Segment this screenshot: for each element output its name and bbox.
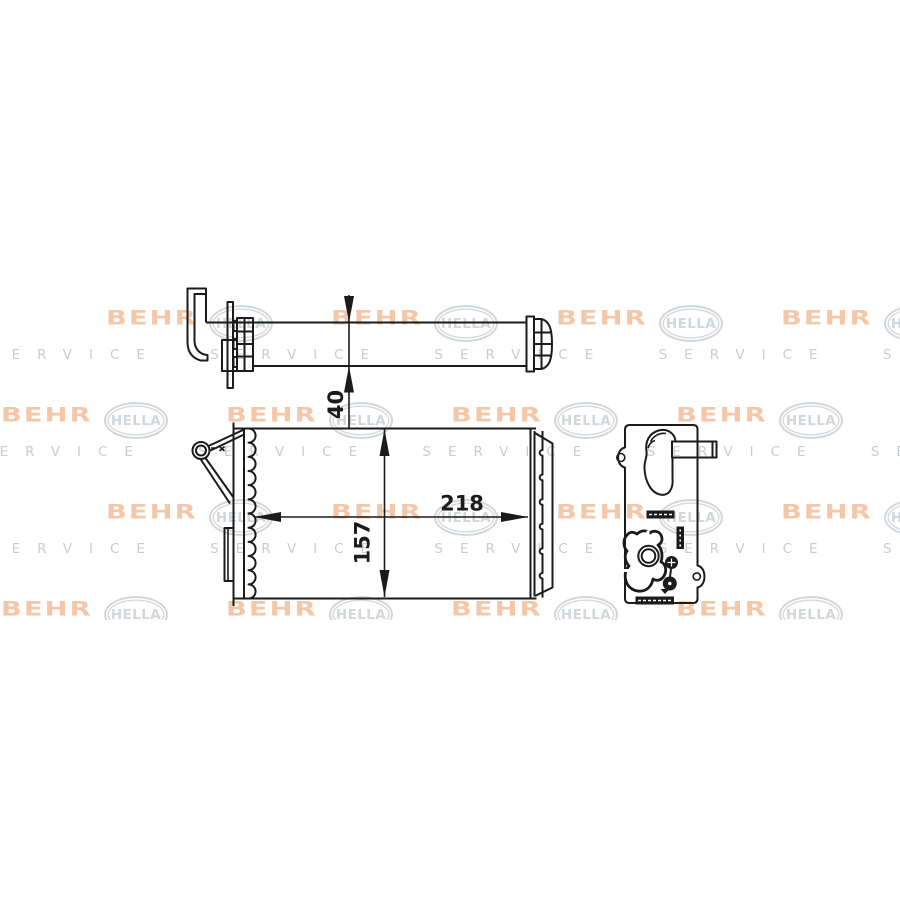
top-view <box>188 289 553 389</box>
corrugated-fins <box>249 429 256 599</box>
label-strip-vertical <box>677 527 685 550</box>
label-strip-middle <box>647 511 675 519</box>
inlet-flange-plate <box>228 302 234 388</box>
strut-line <box>206 458 234 498</box>
strut-line <box>201 459 231 504</box>
dimension-depth: 40 <box>324 295 354 429</box>
product-technical-drawing: BEHRHELLABEHRHELLABEHRHELLABEHRHELLABEHR… <box>0 0 900 900</box>
arrowhead-up <box>344 366 354 393</box>
end-plate <box>527 317 535 372</box>
front-view <box>193 423 553 607</box>
knob-lower-center <box>668 582 671 585</box>
tank-blob-outline <box>644 430 675 495</box>
pipe-body <box>672 442 717 458</box>
dim-width-label: 218 <box>440 492 484 516</box>
screw-hole-right <box>693 573 700 580</box>
index-triangle <box>661 589 670 594</box>
arrowhead-left <box>254 512 281 522</box>
knob-link <box>670 569 671 577</box>
arrowhead-right <box>501 512 528 522</box>
mounting-hook-bracket <box>188 289 208 361</box>
fitting-ring-inner <box>642 549 656 563</box>
side-bracket-view <box>617 425 717 605</box>
right-tank-outline <box>535 433 553 596</box>
label-strip-bottom <box>636 597 675 605</box>
side-tab <box>225 528 234 581</box>
arrowhead-down <box>344 296 354 323</box>
pipe-stub-inner <box>196 446 206 456</box>
arrowhead-up <box>380 429 390 456</box>
dimension-width: 218 <box>254 492 528 523</box>
heater-core-line-drawing: 40 218 <box>0 0 900 900</box>
right-tank-solder-seam <box>540 431 543 598</box>
dim-depth-label: 40 <box>324 390 348 419</box>
dimension-height: 157 <box>351 429 390 597</box>
dim-height-label: 157 <box>351 521 375 565</box>
outlet-pipe <box>672 442 717 458</box>
arrowhead-down <box>380 570 390 597</box>
